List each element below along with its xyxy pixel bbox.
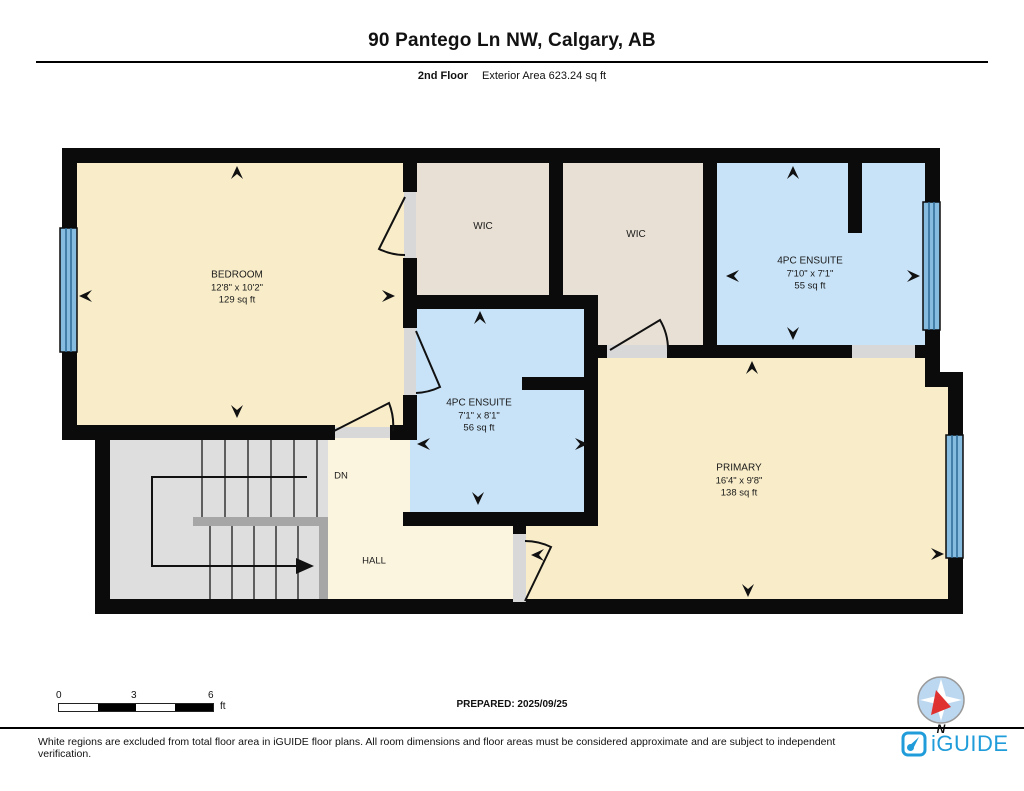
prepared-date: PREPARED: 2025/09/25 [0,699,1024,710]
room-label-ensuite-mid: 4PC ENSUITE 7'1" x 8'1" 56 sq ft [446,397,512,435]
iguide-logo-text: iGUIDE [931,731,1009,757]
stair-railing [193,517,328,526]
floor-plan-drawing [0,0,1024,791]
floor-plan-page: 90 Pantego Ln NW, Calgary, AB 2nd FloorE… [0,0,1024,791]
window-primary-right [946,435,963,558]
footer-disclaimer: White regions are excluded from total fl… [38,736,858,760]
iguide-logo: iGUIDE [901,729,1013,759]
stairs-dn-label: DN [334,471,348,482]
iguide-logo-icon [901,731,927,757]
room-label-hall: HALL [362,556,386,567]
room-label-bedroom: BEDROOM 12'8" x 10'2" 129 sq ft [211,269,263,307]
room-label-wic-left: WIC [473,221,492,234]
room-label-wic-right: WIC [626,229,645,242]
window-top-right [923,202,940,330]
floor-fills [70,155,948,602]
footer-divider [0,727,1024,729]
window-left [60,228,77,352]
room-label-ensuite-top: 4PC ENSUITE 7'10" x 7'1" 55 sq ft [777,255,843,293]
room-label-primary: PRIMARY 16'4" x 9'8" 138 sq ft [716,462,763,500]
